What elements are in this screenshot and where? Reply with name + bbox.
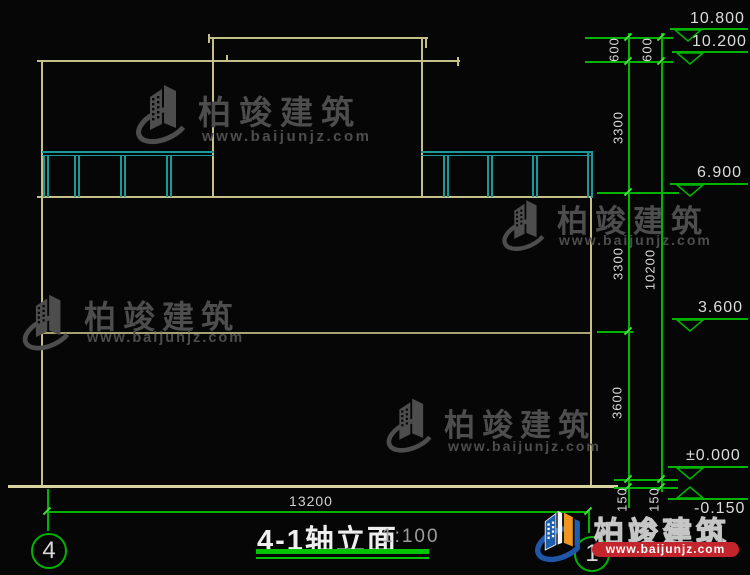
watermark-logo-icon: [502, 196, 554, 256]
watermark-logo-icon: [136, 80, 196, 150]
watermark-url: www.baijunjz.com: [202, 128, 371, 145]
railing-post: [487, 156, 493, 197]
axis-bubble-4: 4: [31, 533, 67, 569]
dimension-chain-outer: [661, 33, 663, 492]
railing-post: [43, 156, 49, 197]
railing-left-toprail-2: [42, 155, 214, 156]
title-underline-thick: [256, 549, 429, 554]
elev-marker-triangle-0000: [676, 467, 704, 480]
roof-slab-line-10800: [208, 37, 428, 39]
drawing-scale: 1:100: [382, 526, 440, 548]
dim-text-10200: 10200: [643, 247, 658, 293]
railing-post: [443, 156, 449, 197]
dim-text-600-inner: 600: [607, 27, 622, 73]
watermark: 柏竣建筑 www.baijunjz.com: [386, 392, 626, 458]
railing-post: [74, 156, 80, 197]
dim-text-3300-lower: 3300: [611, 241, 626, 287]
dim-text-13200: 13200: [281, 493, 341, 509]
cad-elevation-drawing: 柏竣建筑 www.baijunjz.com 柏竣建筑 www.baijunjz.…: [0, 0, 750, 575]
parapet-coping-cap-right: [457, 57, 459, 66]
railing-post: [166, 156, 172, 197]
watermark-logo-icon: [22, 290, 80, 356]
watermark: 柏竣建筑 www.baijunjz.com: [502, 194, 750, 258]
watermark-url: www.baijunjz.com: [87, 330, 244, 346]
brand-logo: 柏竣建筑 www.baijunjz.com: [532, 500, 744, 562]
roof-slab-cap-right: [425, 37, 427, 48]
elev-marker-triangle-6900: [676, 184, 704, 197]
dim-text-3600: 3600: [610, 380, 625, 426]
elev-text-10800: 10.800: [690, 10, 745, 28]
watermark-url: www.baijunjz.com: [559, 232, 712, 248]
watermark-name: 柏竣建筑: [198, 86, 362, 134]
watermark: 柏竣建筑 www.baijunjz.com: [136, 80, 386, 152]
watermark-url: www.baijunjz.com: [448, 438, 601, 454]
elev-marker-triangle-10200: [676, 52, 704, 65]
parapet-coping-line-10200: [37, 60, 460, 62]
railing-post: [120, 156, 126, 197]
dimension-line-13200: [47, 511, 588, 513]
brand-logo-url-bar: www.baijunjz.com: [592, 542, 739, 557]
elev-marker-triangle-neg0150: [676, 486, 704, 499]
railing-right-toprail: [421, 151, 593, 153]
ground-line: [8, 485, 618, 488]
brand-logo-url: www.baijunjz.com: [606, 542, 726, 556]
extension-line-6900: [597, 192, 679, 194]
roof-slab-cap-left: [208, 34, 210, 43]
railing-end-post: [587, 151, 593, 198]
parapet-coping-tick: [226, 55, 228, 60]
title-underline-thin: [256, 557, 429, 559]
elev-text-3600: 3.600: [698, 299, 743, 317]
dimension-chain-inner: [628, 33, 630, 508]
watermark: 柏竣建筑 www.baijunjz.com: [22, 288, 262, 354]
dim-text-3300-upper: 3300: [611, 105, 626, 151]
railing-post: [532, 156, 538, 197]
bulkhead-wall-right: [421, 39, 423, 198]
brand-logo-icon: [532, 502, 594, 566]
wall-line-left: [41, 61, 43, 487]
dim-text-600-outer: 600: [640, 27, 655, 73]
elev-marker-triangle-3600: [676, 319, 704, 332]
elev-text-10200: 10.200: [692, 33, 747, 51]
elev-text-0000: ±0.000: [686, 447, 741, 465]
watermark-logo-icon: [386, 394, 442, 458]
elev-text-6900: 6.900: [697, 164, 742, 182]
